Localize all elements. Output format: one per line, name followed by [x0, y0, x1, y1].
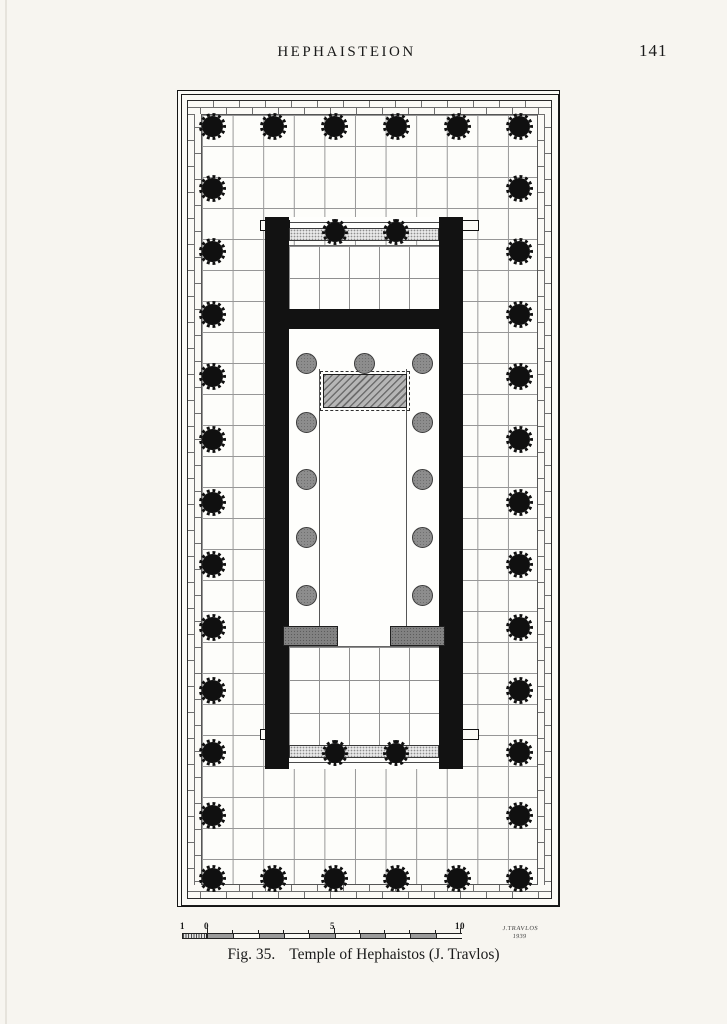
scale-tick: [460, 928, 461, 933]
pronaos-column: [322, 740, 348, 766]
step-joint-line: [289, 222, 439, 223]
scale-tick: [384, 930, 385, 933]
cella-cross-wall: [265, 308, 463, 329]
peristyle-column: [506, 113, 533, 140]
running-header-title: HEPHAISTEION: [0, 44, 693, 61]
book-page: { "header": { "title": "HEPHAISTEION", "…: [0, 0, 727, 1024]
peristyle-column: [506, 677, 533, 704]
opisthodomos-paving: [289, 245, 439, 309]
cella-wall-east: [439, 217, 463, 769]
scale-segment: [335, 934, 361, 938]
peristyle-column: [199, 113, 226, 140]
interior-column: [296, 585, 317, 606]
scan-edge-line: [5, 0, 7, 1024]
page-number: 141: [639, 41, 668, 61]
peristyle-column: [199, 363, 226, 390]
peristyle-column: [506, 739, 533, 766]
scale-tick: [283, 930, 284, 933]
peristyle-column: [506, 238, 533, 265]
scale-segment: [233, 934, 259, 938]
scale-tick: [334, 928, 335, 933]
interior-column: [412, 412, 433, 433]
scale-tick: [435, 930, 436, 933]
masonry-band-right: [538, 114, 551, 885]
scale-segment: [436, 934, 462, 938]
opisthodomos-column: [383, 219, 409, 245]
scale-bar-hatched-meter: [182, 933, 207, 939]
scale-tick: [232, 930, 233, 933]
signature-name: J.TRAVLOS: [497, 925, 544, 933]
peristyle-column: [506, 802, 533, 829]
peristyle-column: [260, 865, 287, 892]
opisthodomos-column: [322, 219, 348, 245]
scale-segment: [208, 934, 233, 938]
scale-label-1: 1: [180, 921, 185, 931]
scale-bar-rule: [207, 933, 462, 939]
masonry-band-bottom: [188, 885, 551, 898]
peristyle-column: [506, 489, 533, 516]
scale-bar: 1 0 5 10: [177, 920, 487, 942]
interior-column: [296, 412, 317, 433]
interior-column: [354, 353, 375, 374]
temple-plan-figure: [177, 90, 560, 907]
peristyle-column: [444, 113, 471, 140]
door-wall-block-east: [390, 626, 445, 646]
signature-year: 1939: [496, 933, 543, 941]
scale-segment: [410, 934, 436, 938]
scale-tick: [409, 930, 410, 933]
peristyle-column: [199, 238, 226, 265]
interior-column: [296, 353, 317, 374]
figure-caption: Fig. 35.Temple of Hephaistos (J. Travlos…: [0, 946, 727, 964]
peristyle-column: [506, 551, 533, 578]
interior-column: [296, 469, 317, 490]
figure-caption-text: Temple of Hephaistos (J. Travlos): [289, 946, 499, 963]
pronaos-column: [383, 740, 409, 766]
cella-wall-west: [265, 217, 289, 769]
peristyle-column: [506, 363, 533, 390]
scale-tick: [359, 930, 360, 933]
scale-segment: [259, 934, 285, 938]
peristyle-column: [199, 802, 226, 829]
statue-base: [323, 374, 407, 408]
scale-tick: [207, 928, 208, 933]
scale-segment: [385, 934, 411, 938]
scale-segment: [284, 934, 310, 938]
peristyle-column: [199, 426, 226, 453]
peristyle-column: [199, 614, 226, 641]
masonry-band-top: [188, 101, 551, 114]
pronaos-step-bottom: [289, 758, 439, 769]
peristyle-column: [506, 426, 533, 453]
opisthodomos-step-band: [289, 228, 439, 241]
peristyle-column: [199, 865, 226, 892]
peristyle-column: [444, 865, 471, 892]
peristyle-column: [506, 865, 533, 892]
figure-caption-label: Fig. 35.: [227, 946, 275, 963]
peristyle-column: [260, 113, 287, 140]
interior-colonnade-line-west: [319, 369, 320, 626]
interior-column: [412, 527, 433, 548]
interior-column: [412, 469, 433, 490]
peristyle-column: [199, 739, 226, 766]
door-wall-block-west: [283, 626, 338, 646]
peristyle-column: [383, 113, 410, 140]
peristyle-column: [321, 865, 348, 892]
peristyle-column: [199, 301, 226, 328]
peristyle-column: [506, 614, 533, 641]
peristyle-column: [199, 551, 226, 578]
scale-segment: [360, 934, 386, 938]
interior-column: [412, 353, 433, 374]
scale-segment: [309, 934, 335, 938]
peristyle-column: [199, 677, 226, 704]
peristyle-column: [383, 865, 410, 892]
pronaos-paving: [289, 646, 439, 745]
scale-tick: [258, 930, 259, 933]
peristyle-column: [506, 301, 533, 328]
peristyle-column: [506, 175, 533, 202]
scale-tick: [308, 930, 309, 933]
interior-column: [412, 585, 433, 606]
interior-column: [296, 527, 317, 548]
pronaos-step-band: [289, 745, 439, 758]
step-joint-line: [289, 762, 439, 763]
draughtsman-signature: J.TRAVLOS 1939: [496, 925, 544, 941]
peristyle-column: [199, 175, 226, 202]
peristyle-column: [199, 489, 226, 516]
peristyle-column: [321, 113, 348, 140]
